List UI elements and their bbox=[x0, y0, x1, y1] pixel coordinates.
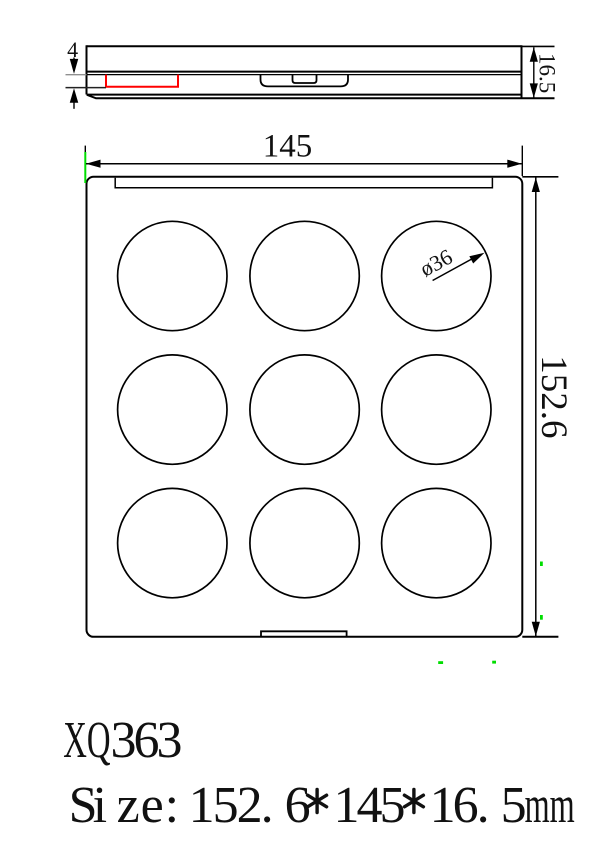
svg-text:4: 4 bbox=[67, 37, 78, 62]
svg-text:XQ: XQ bbox=[63, 712, 110, 769]
svg-text:16.5: 16.5 bbox=[430, 777, 527, 834]
svg-text:363: 363 bbox=[111, 712, 183, 769]
svg-text:Size:152.6: Size:152.6 bbox=[69, 777, 311, 834]
svg-text:152.6: 152.6 bbox=[533, 355, 574, 438]
svg-text:ø36: ø36 bbox=[416, 244, 457, 282]
svg-text:mm: mm bbox=[525, 776, 575, 834]
svg-text:145: 145 bbox=[334, 777, 406, 834]
svg-text:16.5: 16.5 bbox=[535, 53, 560, 93]
svg-text:145: 145 bbox=[263, 129, 313, 165]
